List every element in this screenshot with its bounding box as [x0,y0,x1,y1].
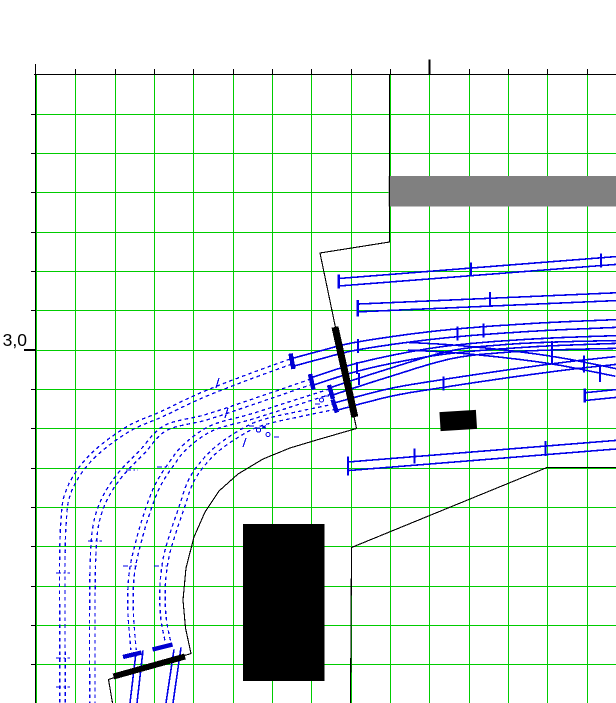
svg-text:3,0: 3,0 [3,330,28,350]
